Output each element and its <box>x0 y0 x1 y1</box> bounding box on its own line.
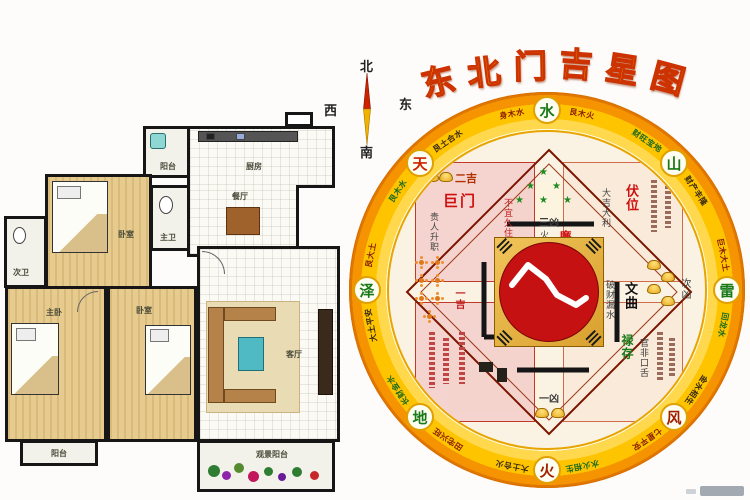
bed <box>145 325 191 395</box>
room-bath-second: 次卫 <box>4 216 47 288</box>
room-balcony-top: 阳台 <box>143 126 190 178</box>
ring-segment: 大土平安 <box>362 307 379 342</box>
flower-icon <box>435 296 440 301</box>
ring-segment: 水火相生 <box>564 457 599 474</box>
page-title: 东 北 门 吉 星 图 <box>423 40 683 104</box>
small-text-block <box>459 332 465 384</box>
bed <box>11 323 59 395</box>
sofa <box>224 307 276 321</box>
sofa <box>224 389 276 403</box>
room-bedroom-2: 卧室 <box>107 286 197 442</box>
trigram-label: 火 <box>539 460 554 481</box>
title-char: 东 <box>416 52 464 122</box>
room-label: 卧室 <box>118 229 134 240</box>
trigram-circle-east: 雷 <box>713 276 741 304</box>
star-icon: ★ <box>526 182 535 192</box>
room-label: 主卧 <box>46 307 62 318</box>
rank-label-nw: 二吉 <box>455 170 477 186</box>
room-label: 观景阳台 <box>256 449 288 460</box>
plant-icon <box>222 471 231 480</box>
trigram-label: 雷 <box>719 280 734 301</box>
ring-segment: 回龙水 <box>715 311 731 338</box>
plant-icon <box>234 463 244 473</box>
star-icon: ★ <box>552 182 561 192</box>
room-master-bedroom: 主卧 <box>5 286 107 442</box>
trigram-circle-southeast: 风 <box>660 403 688 431</box>
coffee-table <box>238 337 264 371</box>
note-se: 官非口舌 <box>637 338 650 378</box>
big-dipper-icon <box>500 243 598 341</box>
gold-ingot-icon <box>661 272 675 282</box>
compass-east-label: 东 <box>399 94 412 113</box>
washer-icon <box>150 133 166 149</box>
flower-icon <box>419 260 424 265</box>
blanket <box>53 214 107 253</box>
trigram-label: 泽 <box>359 280 374 301</box>
small-text-block <box>665 186 671 228</box>
star-name-jumen: 巨门 <box>443 190 477 211</box>
plant-icon <box>310 471 319 480</box>
compass-needle-icon <box>360 73 374 145</box>
trigram-circle-south: 火 <box>533 456 561 484</box>
star-icon: ★ <box>539 168 548 178</box>
toilet-icon <box>159 196 173 214</box>
star-name-wenqu: 文曲 <box>620 282 639 310</box>
room-label: 阳台 <box>51 448 67 459</box>
dining-table <box>226 207 260 235</box>
watermark <box>686 489 696 494</box>
flue-box <box>285 112 313 127</box>
note-ne: 大吉大利 <box>599 188 612 228</box>
toilet-icon <box>13 227 26 244</box>
trigram-label: 地 <box>412 407 427 428</box>
room-label: 客厅 <box>286 349 302 360</box>
ring-segment: 身木水 <box>498 106 525 122</box>
star-name-lucun: 禄存 <box>619 334 636 360</box>
stove-icon <box>206 133 215 140</box>
plant-icon <box>248 471 259 482</box>
flower-icon <box>419 296 424 301</box>
feng-shui-floorplan-image: 阳台 厨房 餐厅 主卫 卧室 次卫 <box>0 0 750 500</box>
trigram-circle-west: 泽 <box>353 276 381 304</box>
watermark <box>700 486 744 496</box>
tv-console <box>318 309 333 395</box>
gold-ingot-icon <box>647 260 661 270</box>
rank-label-east: 次凶 <box>677 278 692 300</box>
door-arc <box>77 291 98 312</box>
blanket <box>146 357 190 394</box>
bed <box>52 181 108 253</box>
door-arc <box>202 251 225 274</box>
room-label: 次卫 <box>13 267 29 278</box>
warn-nw: 不宜久住 <box>501 198 514 238</box>
compass-west-label: 西 <box>324 100 337 119</box>
flower-icon <box>435 260 440 265</box>
star-name-fuwei: 伏位 <box>621 184 640 212</box>
room-label: 卧室 <box>136 305 152 316</box>
star-icon: ★ <box>515 196 524 206</box>
floor-plan: 阳台 厨房 餐厅 主卫 卧室 次卫 <box>2 112 348 458</box>
small-text-block <box>429 332 435 388</box>
title-char: 图 <box>642 49 690 119</box>
ring-segment: 艮木火 <box>568 106 595 122</box>
small-text-block <box>651 180 657 232</box>
rank-label-west: 一吉 <box>451 288 466 310</box>
ring-segment: 巨木大土 <box>714 237 731 272</box>
rank-label-south: 一凶 <box>539 390 559 405</box>
small-text-block <box>657 332 663 382</box>
trigram-circle-northeast: 山 <box>660 149 688 177</box>
plant-icon <box>292 467 302 477</box>
room-bath-main: 主卫 <box>150 185 190 251</box>
rank-label-top: 三凶 <box>539 214 559 229</box>
plant-icon <box>264 467 273 476</box>
trigram-label: 风 <box>666 407 681 428</box>
wheel-inner-chart: ★ ★ ★ ★ ★ ★ 三凶 廉贞 火海血光 二吉 巨门 贵人升职 不宜久住 伏… <box>387 130 707 450</box>
room-view-balcony: 观景阳台 <box>197 440 335 492</box>
room-kitchen: 厨房 <box>187 126 335 188</box>
blanket <box>12 356 58 395</box>
flower-icon <box>435 278 440 283</box>
room-label: 阳台 <box>160 161 176 172</box>
sofa <box>208 307 224 403</box>
ring-segment: 大土合火 <box>494 457 529 474</box>
room-label: 主卫 <box>160 232 176 243</box>
gold-ingot-icon <box>647 284 661 294</box>
gold-ingot-icon <box>551 408 565 418</box>
gold-ingot-icon <box>661 296 675 306</box>
ring-segment: 艮大土 <box>363 241 379 268</box>
compass-rose: 北 西 东 南 <box>322 56 414 161</box>
flower-icon <box>419 278 424 283</box>
gold-ingot-icon <box>439 172 453 182</box>
note-east: 破财漏水 <box>603 280 616 320</box>
furniture-icon <box>497 368 507 382</box>
furniture-icon <box>479 362 493 372</box>
big-dipper-circle <box>499 242 599 342</box>
room-balcony-bottom: 阳台 <box>20 440 98 466</box>
star-icon: ★ <box>563 196 572 206</box>
trigram-label: 天 <box>412 153 427 174</box>
title-char: 北 <box>465 44 506 112</box>
star-icon: ★ <box>539 196 548 206</box>
room-living: 客厅 <box>197 246 340 442</box>
room-label: 餐厅 <box>232 191 248 202</box>
room-label: 厨房 <box>246 161 262 172</box>
plant-icon <box>208 465 220 477</box>
gold-ingot-icon <box>535 408 549 418</box>
plant-icon <box>278 473 286 481</box>
pillow <box>150 329 170 342</box>
flower-icon <box>427 314 432 319</box>
pillow <box>57 186 81 199</box>
title-char: 星 <box>600 41 643 109</box>
sink-icon <box>236 133 245 140</box>
trigram-label: 山 <box>666 153 681 174</box>
trigram-circle-southwest: 地 <box>406 403 434 431</box>
title-char: 吉 <box>557 37 594 103</box>
small-text-block <box>669 338 675 378</box>
pillow <box>16 328 36 341</box>
small-text-block <box>443 338 449 384</box>
title-char: 门 <box>513 40 547 105</box>
note-nw: 贵人升职 <box>427 212 440 252</box>
